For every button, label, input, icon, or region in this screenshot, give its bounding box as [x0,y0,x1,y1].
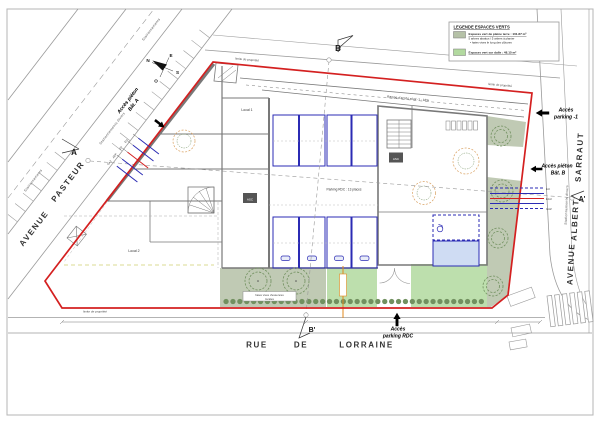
legend-title: LEGENDE ESPACES VERTS [454,25,510,30]
street-name-lorraine: LORRAINE [339,341,394,350]
access-parking-m1-line2: parking -1 [553,115,578,121]
compass-e: E [169,53,172,58]
legend-swatch-sur-dalle [454,49,466,56]
access-parking-rdc-line2: parking RDC [382,334,414,340]
car-icon [308,256,317,261]
utility-label: EU [546,187,550,191]
car-icon [281,256,290,261]
elevator-label: ASC [247,198,254,202]
local1-label: Local 1 [241,108,252,112]
section-marker-a-prime: A' [579,196,586,203]
access-parking-m1-line1: Accès [558,108,574,114]
site-plan-drawing: haies vives d'essences locales EU EP AEP… [0,0,600,424]
access-pieton-b-line2: Bât. B [551,171,566,177]
local2-label: Local 2 [128,249,139,253]
access-pieton-b-line1: Accès piéton [540,164,572,170]
utility-label: GAZ [546,207,552,211]
site-plan-sheet: haies vives d'essences locales EU EP AEP… [0,0,600,424]
legend-item2-label: Espaces vert sur dalle : 48.15 m² [469,51,517,55]
street-name-rue: RUE [246,341,268,350]
elevator-label: ASC [393,157,400,161]
hedge-label: haies vives d'essences locales [243,292,296,302]
street-name-de: DE [294,341,308,350]
pmr-parking-stall [433,241,479,266]
car-icon [335,256,344,261]
parking-count-label: Parking RDC : 13 places [327,188,362,192]
utility-label: EAU [546,197,552,201]
compass-s: S [176,70,179,75]
car-icon [360,256,369,261]
limite-propriete-label: limite de propriété [83,310,107,314]
compass-o: O [154,79,158,84]
legend-item1-label: Espaces vert de pleine terre : 101.87 m² [469,32,527,36]
hedge-label-line2: locales [265,297,274,301]
legend-espaces-verts: LEGENDE ESPACES VERTS Espaces vert de pl… [449,22,559,61]
legend-item1-line3: • haies vives le long des clôtures [470,41,512,45]
access-parking-rdc-line1: Accès [390,327,406,333]
legend-swatch-pleine-terre [454,32,466,39]
